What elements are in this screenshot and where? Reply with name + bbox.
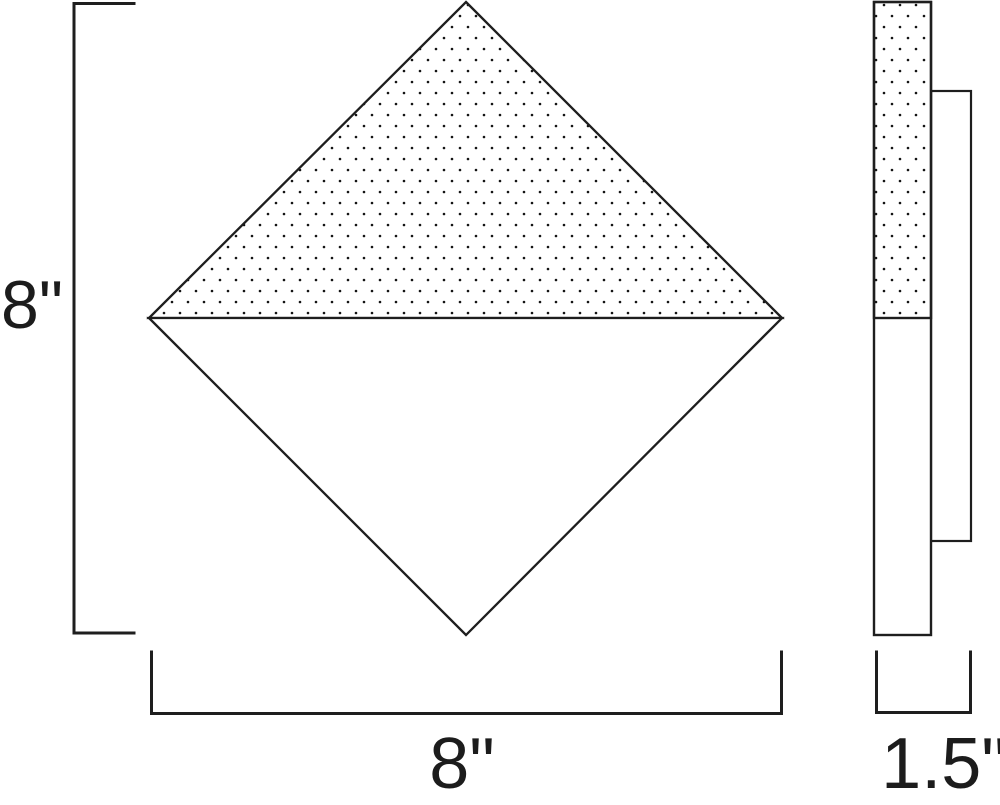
- front-diamond-upper-stippled-half: [149, 2, 782, 318]
- side-view: [874, 2, 971, 635]
- depth-dimension-bracket: [877, 652, 971, 713]
- side-view-mounting-plate: [931, 91, 971, 541]
- front-diamond-lower-half: [149, 318, 782, 635]
- height-dimension-label: 8": [1, 267, 63, 343]
- side-view-upper-stippled-section: [874, 2, 931, 318]
- depth-dimension-label: 1.5": [881, 724, 1000, 804]
- front-view: [149, 2, 782, 635]
- height-dimension-bracket: [74, 4, 134, 634]
- width-dimension-bracket: [152, 652, 782, 714]
- drawing-canvas: 8" 8" 1.5": [0, 0, 1000, 805]
- width-dimension-label: 8": [429, 724, 495, 804]
- technical-drawing: 8" 8" 1.5": [0, 0, 1000, 805]
